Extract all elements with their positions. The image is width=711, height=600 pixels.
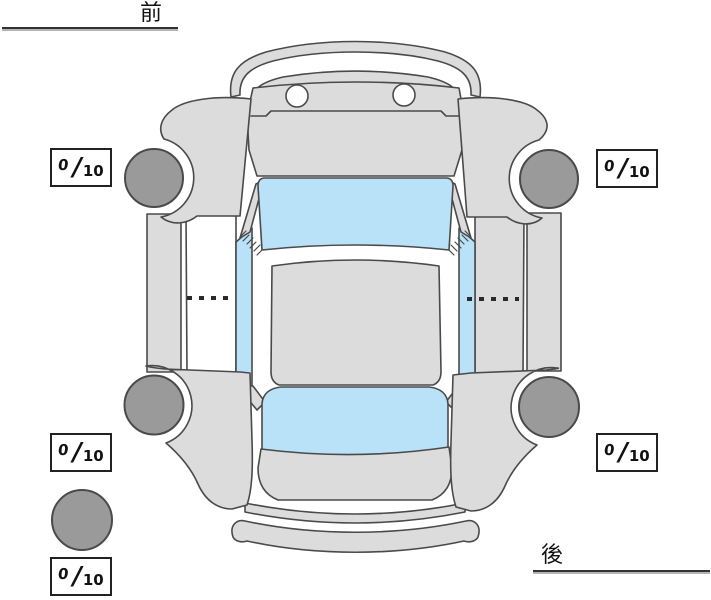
score-separator: / xyxy=(73,152,82,181)
tread-score-front-left-max: 10 xyxy=(83,162,104,180)
tread-score-rear-left-max: 10 xyxy=(83,447,104,465)
side-window-right xyxy=(459,228,475,387)
tire-front-left xyxy=(125,149,183,207)
rear-label: 後 xyxy=(541,544,564,568)
headlight-left xyxy=(286,85,308,107)
trunk xyxy=(258,447,452,500)
tread-score-front-right: 0/10 xyxy=(596,149,658,188)
score-separator: / xyxy=(619,437,628,466)
side-window-left xyxy=(236,228,252,387)
tread-score-spare: 0/10 xyxy=(50,557,112,596)
score-separator: / xyxy=(73,437,82,466)
hood xyxy=(247,82,464,176)
score-separator: / xyxy=(73,561,82,590)
tread-score-front-right-max: 10 xyxy=(629,163,650,181)
side-sill-left xyxy=(147,214,181,372)
car-top-view-diagram xyxy=(0,0,711,600)
tread-score-spare-max: 10 xyxy=(83,571,104,589)
rear-bumper xyxy=(232,521,479,553)
front-label-rule xyxy=(2,27,178,29)
tread-score-rear-left: 0/10 xyxy=(50,433,112,472)
spare-tire xyxy=(52,490,112,550)
windshield xyxy=(258,178,453,250)
tread-score-rear-right-max: 10 xyxy=(629,447,650,465)
rear-window xyxy=(262,387,448,456)
tread-score-spare-value: 0 xyxy=(57,565,69,583)
tread-score-rear-left-value: 0 xyxy=(57,441,69,459)
score-separator: / xyxy=(619,153,628,182)
tire-front-right xyxy=(520,150,578,208)
side-sill-right xyxy=(527,213,561,371)
tread-score-front-right-value: 0 xyxy=(603,157,615,175)
tread-score-rear-right: 0/10 xyxy=(596,433,658,472)
headlight-right xyxy=(393,84,415,106)
tire-rear-left xyxy=(125,376,184,435)
tire-rear-right xyxy=(519,377,579,437)
door-panel-right xyxy=(475,213,524,378)
tread-score-front-left: 0/10 xyxy=(50,148,112,187)
tread-score-front-left-value: 0 xyxy=(57,156,69,174)
rear-trunk-edge-strip xyxy=(245,503,465,523)
front-label: 前 xyxy=(140,2,163,26)
rear-label-rule xyxy=(533,570,710,572)
roof xyxy=(271,260,441,385)
door-panel-left xyxy=(186,213,236,378)
tread-score-rear-right-value: 0 xyxy=(603,441,615,459)
vehicle-condition-diagram: 前 後 0/10 0/10 0/10 0/10 0/10 xyxy=(0,0,711,600)
